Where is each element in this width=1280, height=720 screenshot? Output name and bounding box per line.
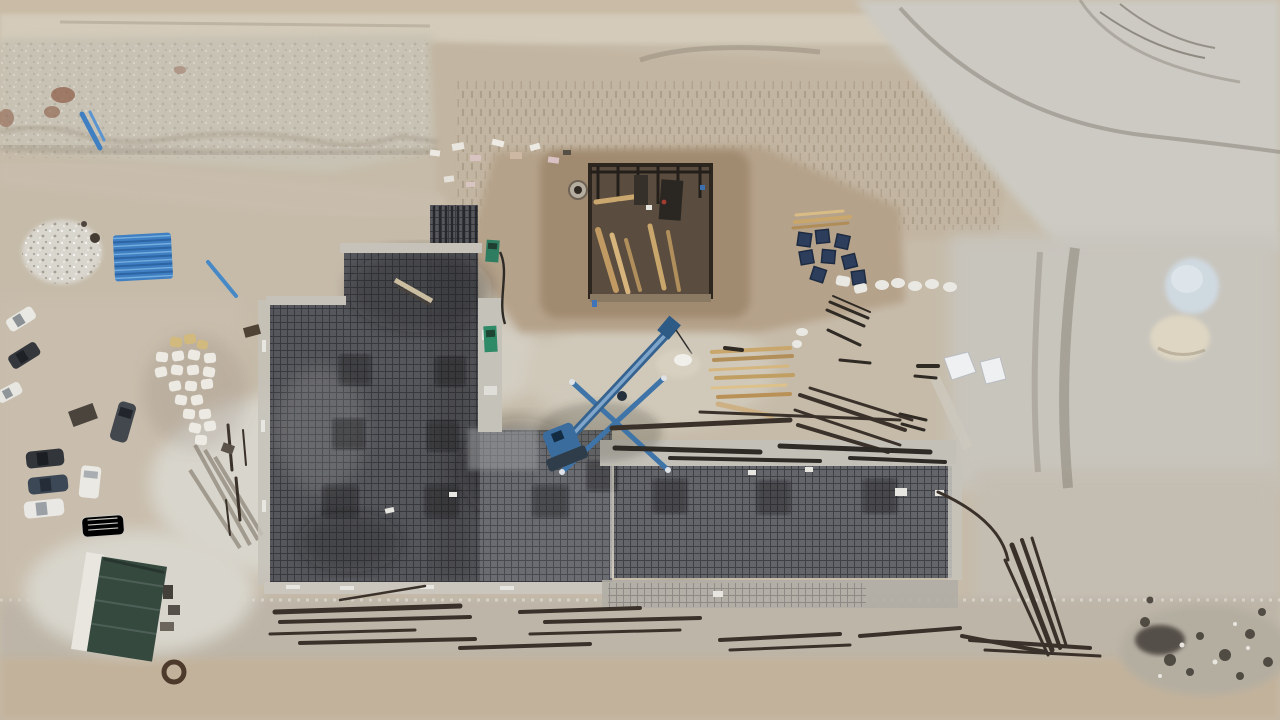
sand-pile-tarp: [674, 354, 692, 366]
blue-pipe-stack: Stack of blue pipes: [113, 233, 173, 282]
pale-mound-highlight: [1171, 265, 1203, 293]
manhole-hole: [574, 186, 582, 194]
gravel-dark-spot: [90, 233, 100, 243]
gravel-dark-spot: [81, 221, 87, 227]
formwork-pit: Excavated pit with timber formwork and s…: [569, 163, 713, 307]
mat-middle-light: [468, 428, 538, 470]
pit-walkway: [590, 294, 711, 302]
bottom-dirt: [0, 658, 1280, 720]
pickup-white: [78, 465, 101, 499]
walkway-strip: [478, 298, 502, 432]
van-white: [81, 515, 124, 538]
rubble-dark-area: [1135, 625, 1185, 655]
canopy-shelter: Green canopy shelter with white edge: [71, 552, 167, 662]
aerial-photo: Graded sandy terrain with tire tracks: [0, 0, 1280, 720]
gravel-texture: [22, 220, 102, 284]
pit-blue-bit: [592, 300, 597, 307]
rig-auger: [617, 391, 627, 401]
